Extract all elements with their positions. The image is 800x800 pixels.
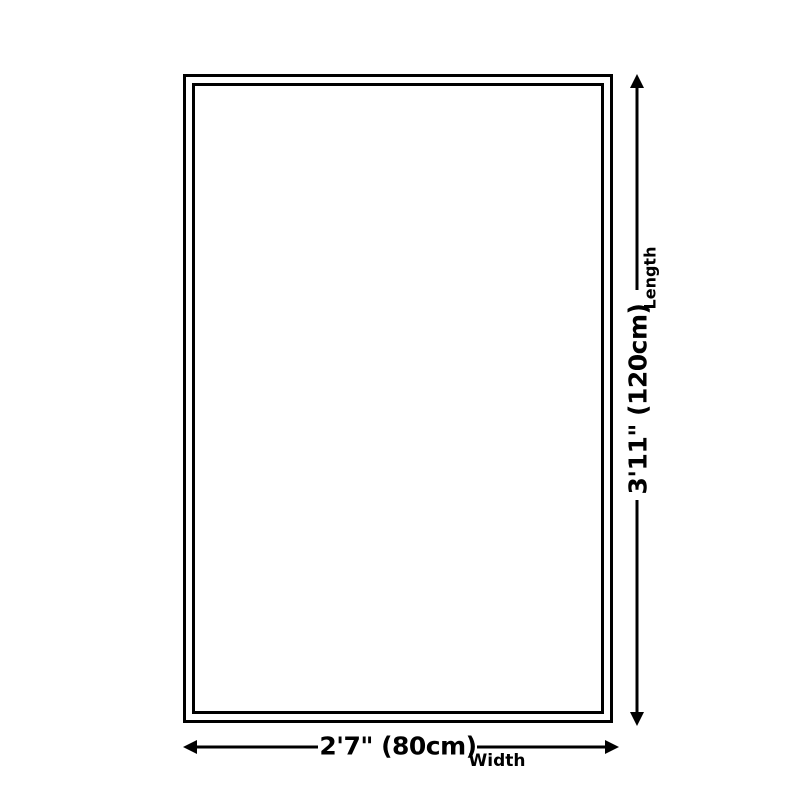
arrowhead-up-icon xyxy=(630,74,644,88)
width-axis-label: Width xyxy=(469,751,526,771)
dimension-arrows xyxy=(0,0,800,800)
dimension-diagram: 3'11" (120cm) Length 2'7" (80cm) Width xyxy=(0,0,800,800)
length-axis-label: Length xyxy=(641,247,660,310)
length-value: 3'11" (120cm) xyxy=(624,304,653,495)
arrowhead-down-icon xyxy=(630,712,644,726)
width-value: 2'7" (80cm) xyxy=(319,732,476,761)
arrowhead-left-icon xyxy=(183,740,197,754)
arrowhead-right-icon xyxy=(605,740,619,754)
